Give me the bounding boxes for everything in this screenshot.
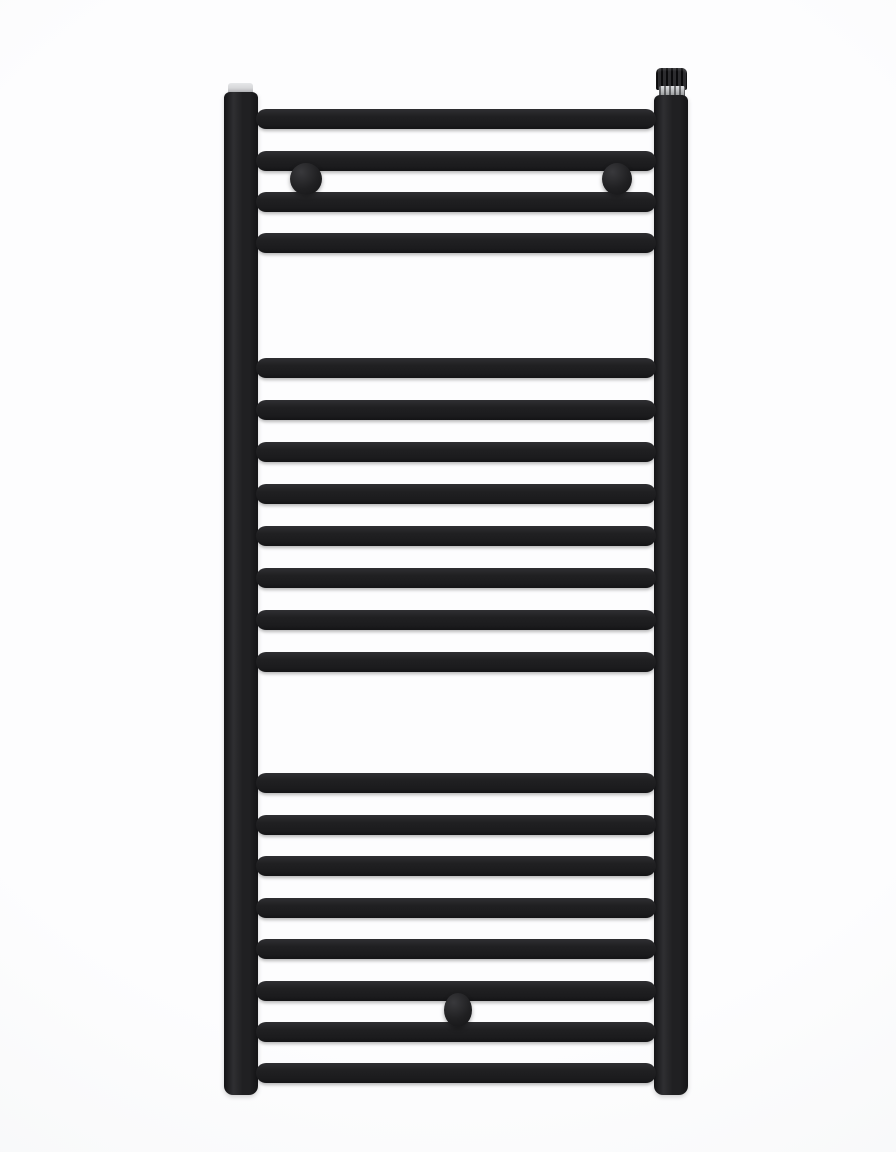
rung-bar — [256, 856, 656, 876]
rung-bar — [256, 484, 656, 504]
rung-bar — [256, 442, 656, 462]
product-photo — [0, 0, 896, 1152]
rung-bar — [256, 233, 656, 253]
wall-bracket-knob-right — [602, 163, 632, 195]
rung-bar — [256, 1063, 656, 1083]
bottom-drain-knob — [444, 993, 472, 1027]
rung-bar — [256, 815, 656, 835]
rung-bar — [256, 400, 656, 420]
rung-bar — [256, 773, 656, 793]
rung-bar — [256, 568, 656, 588]
rung-bar — [256, 358, 656, 378]
rung-bar — [256, 610, 656, 630]
rung-bar — [256, 939, 656, 959]
rung-bar — [256, 109, 656, 129]
rung-bar — [256, 652, 656, 672]
rung-bar — [256, 898, 656, 918]
rung-bar — [256, 526, 656, 546]
wall-bracket-knob-left — [290, 163, 322, 195]
rung-bar — [256, 192, 656, 212]
rung-bars — [0, 0, 896, 1152]
